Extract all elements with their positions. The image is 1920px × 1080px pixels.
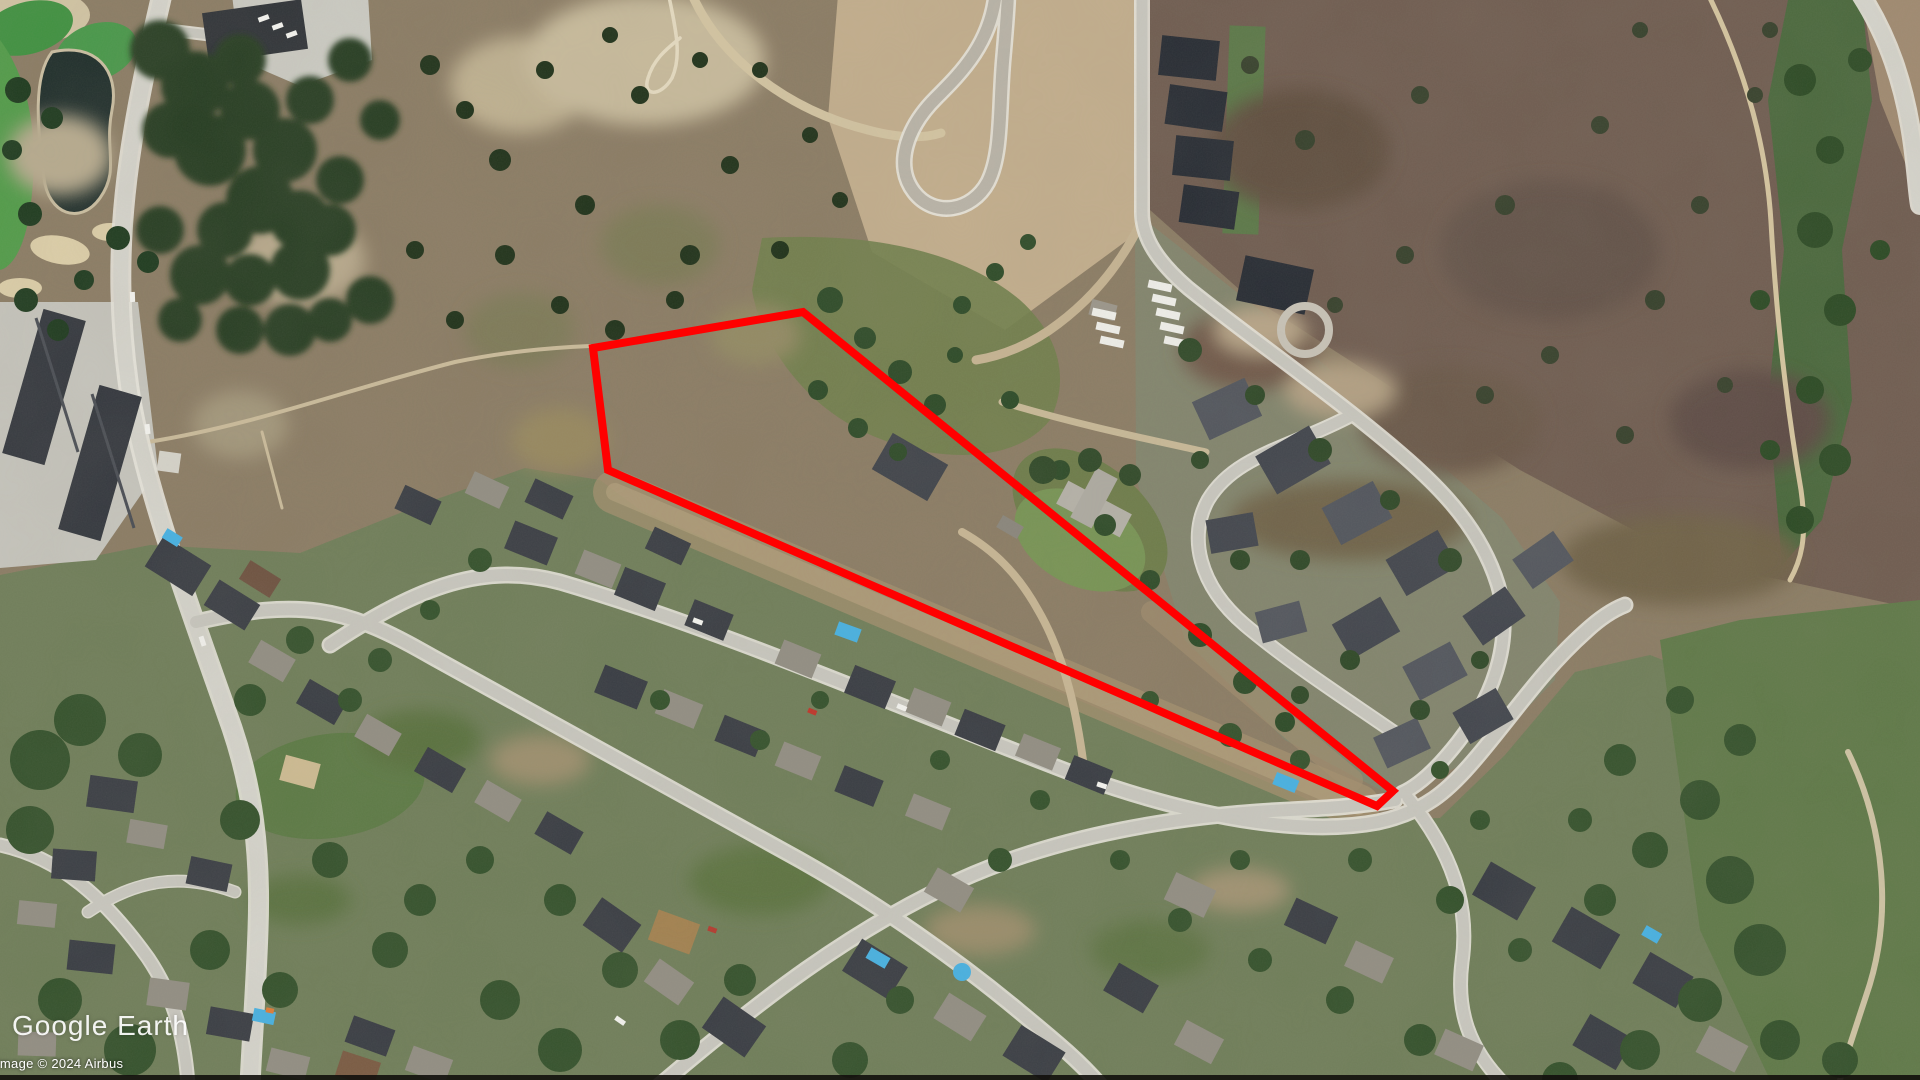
google-earth-viewport[interactable]: Google Earth Image © 2024 Airbus xyxy=(0,0,1920,1080)
imagery-mottle xyxy=(0,0,1920,1080)
imagery-attribution: Image © 2024 Airbus xyxy=(0,1056,123,1071)
bottom-edge-strip xyxy=(0,1075,1920,1080)
google-earth-watermark: Google Earth xyxy=(12,1010,189,1042)
satellite-imagery xyxy=(0,0,1920,1080)
